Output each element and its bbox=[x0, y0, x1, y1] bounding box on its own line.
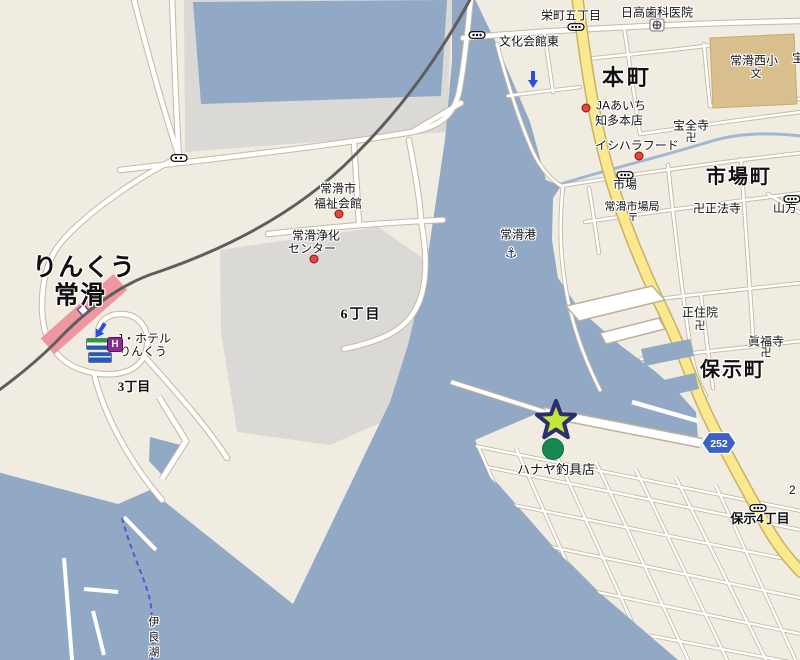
lawson-icon[interactable] bbox=[88, 352, 112, 363]
map-canvas: 252 bbox=[0, 0, 800, 660]
label-hoji-4chome: 保示4丁目 bbox=[730, 512, 789, 526]
label-tokoname-nishi-elementary: 常滑西小 bbox=[730, 55, 778, 68]
label-sakaemachi-5chome: 栄町五丁目 bbox=[541, 10, 601, 23]
label-jouka-center-line2: センター bbox=[288, 243, 336, 256]
label-3chome: 3丁目 bbox=[118, 380, 151, 394]
label-ichibacho: 市場町 bbox=[706, 167, 772, 189]
label-rinku-line1: りんくう bbox=[32, 255, 136, 282]
label-ichiba-busstop: 市場 bbox=[613, 179, 637, 192]
poi-dot-fukushi-kaikan[interactable] bbox=[335, 210, 344, 219]
poi-dot-ishihara[interactable] bbox=[635, 152, 644, 161]
label-honmachi: 本町 bbox=[602, 66, 652, 90]
school-glyph-icon: 文 bbox=[751, 69, 762, 81]
label-hidaka-dental: 日高歯科医院 bbox=[621, 7, 693, 20]
poi-dot-jouka-center[interactable] bbox=[310, 255, 319, 264]
temple-manji-icon-shojuin: 卍 bbox=[695, 321, 706, 333]
label-irako-ferry: 伊良湖 bbox=[146, 616, 158, 660]
route-252-badge: 252 bbox=[702, 433, 736, 454]
label-hojimachi: 保示町 bbox=[700, 360, 766, 382]
label-jhotel-line2: りんくう bbox=[119, 346, 167, 359]
temple-manji-icon-hozenji: 卍 bbox=[686, 133, 697, 145]
route-252-badge-label: 252 bbox=[710, 438, 728, 450]
harbor-basin-north bbox=[193, 0, 447, 104]
label-ishihara-food: イシハラフード bbox=[595, 140, 679, 153]
label-hozenji: 宝全寺 bbox=[673, 120, 709, 133]
label-partial-2: 2 bbox=[789, 484, 796, 497]
label-fukushi-kaikan-line1: 常滑市 bbox=[320, 183, 356, 196]
label-ja-aichi-line2: 知多本店 bbox=[595, 115, 643, 128]
label-ja-aichi-line1: JAあいち bbox=[596, 100, 646, 113]
green-poi-marker[interactable] bbox=[543, 439, 564, 460]
hotel-h-icon[interactable]: H bbox=[107, 337, 123, 352]
label-bunka-kaikan-higashi: 文化会館東 bbox=[499, 36, 559, 49]
bus-stop-icon-yamakata bbox=[783, 195, 800, 204]
poi-dot-ja-aichi[interactable] bbox=[582, 104, 591, 113]
label-shojuin: 正住院 bbox=[682, 307, 718, 320]
label-shohoji: 卍正法寺 bbox=[693, 203, 741, 216]
label-6chome: 6丁目 bbox=[341, 307, 382, 322]
label-tokoname-port: 常滑港 bbox=[500, 229, 536, 242]
label-rinku-line2: 常滑 bbox=[54, 283, 106, 310]
hospital-icon bbox=[650, 19, 664, 31]
bus-stop-icon-ichiba bbox=[616, 171, 634, 180]
post-office-icon: 〒 bbox=[628, 213, 639, 225]
bus-stop-icon-sakaemachi bbox=[567, 23, 585, 32]
label-takara-partial: 宝 bbox=[792, 52, 800, 65]
bus-stop-icon-bunka-kaikan bbox=[468, 31, 486, 40]
label-yamakata: 山方 bbox=[773, 202, 797, 215]
bus-stop-icon-west bbox=[170, 154, 188, 163]
map: 252 栄町五丁目 日高歯科医院 文化会館東 本町 JAあいち 知多本店 宝 常… bbox=[0, 0, 800, 660]
bus-stop-icon-hoji4 bbox=[749, 504, 767, 513]
temple-manji-icon-shinpukuji: 卍 bbox=[761, 348, 772, 360]
label-hanaya-tackle-shop: ハナヤ釣具店 bbox=[517, 463, 595, 477]
anchor-icon: ⚓ bbox=[505, 245, 520, 260]
